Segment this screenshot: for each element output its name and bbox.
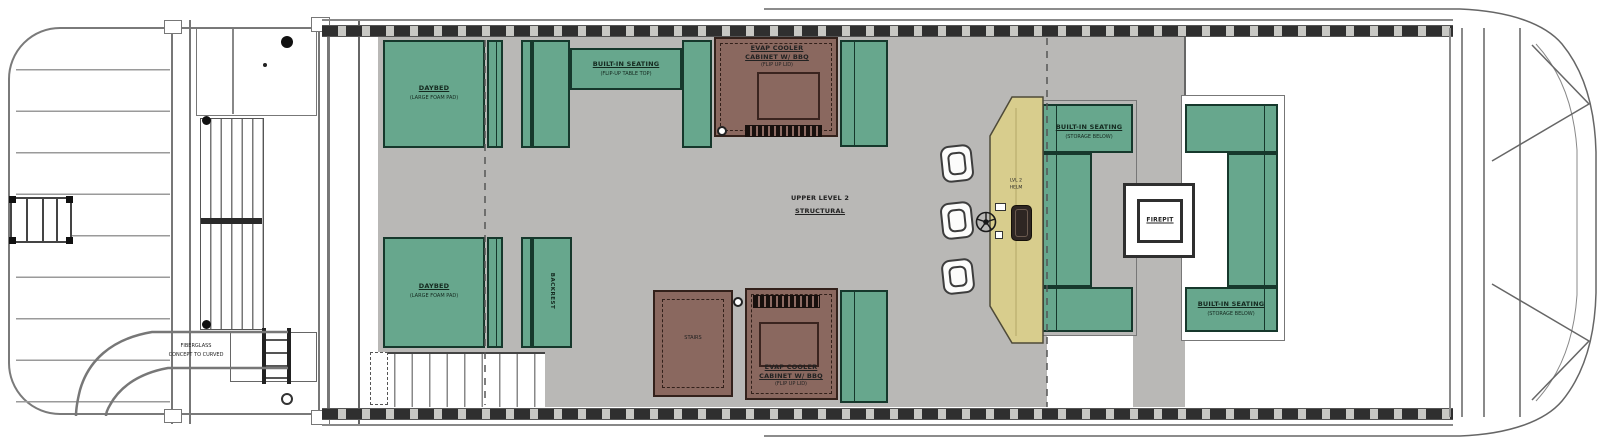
stairs-dashed-landing xyxy=(370,352,388,405)
deck-stairs xyxy=(378,352,545,407)
firepit-sofa-fwd-column xyxy=(1042,153,1092,287)
bar-stool xyxy=(939,143,975,183)
bulkhead-tab xyxy=(164,409,182,423)
cooler-fwd-line2: CABINET W/ BBQ xyxy=(745,53,809,61)
bow-aft-wall xyxy=(318,20,320,424)
daybed-fwd-sub: (LARGE FOAM PAD) xyxy=(410,95,458,101)
bow-panel xyxy=(196,28,317,116)
helm-gauge xyxy=(995,231,1003,239)
roof-edge-top xyxy=(322,19,1453,21)
cooler-side-seat xyxy=(840,290,888,403)
bulkhead-tab xyxy=(164,20,182,34)
deck-bolt xyxy=(281,36,293,48)
deck-aft-pocket xyxy=(1047,336,1133,407)
helm-gauge xyxy=(995,203,1006,211)
bow-bulkhead-line xyxy=(189,20,191,424)
bar-stool xyxy=(940,257,975,295)
cooler-side-seat xyxy=(840,40,888,147)
cooler-aft-line3: (FLIP UP LID) xyxy=(775,381,807,387)
stair-post xyxy=(202,320,211,329)
backrest-label: BACKREST xyxy=(549,273,555,309)
stern-bulkhead-line xyxy=(1519,28,1521,417)
gunwale-rail-top xyxy=(322,25,1453,37)
backrest-strip xyxy=(521,40,532,148)
sofa-arm xyxy=(532,40,570,148)
cooler-fwd-line1: EVAP COOLER xyxy=(751,44,804,52)
daybed-fwd-label: DAYBED xyxy=(419,84,450,92)
firepit-sofa-fwd-label: BUILT-IN SEATING xyxy=(1056,123,1123,131)
helm-label-line1: LVL 2 xyxy=(1010,179,1022,184)
deck-plan-canvas: UPPER LEVEL 2 STRUCTURAL DAYBED (LARGE F… xyxy=(0,0,1600,445)
center-label-line1: UPPER LEVEL 2 xyxy=(791,194,849,202)
stern-bulkhead-line xyxy=(1461,28,1463,417)
helm-label-line2: HELM xyxy=(1010,186,1023,191)
firepit-label: FIREPIT xyxy=(1146,217,1173,224)
sofa-arm xyxy=(682,40,712,148)
stair-post xyxy=(202,116,211,125)
helm-console xyxy=(1011,205,1032,241)
deck-edge-line xyxy=(1184,37,1186,97)
roof-edge-bottom xyxy=(322,424,1453,426)
bow-staircase xyxy=(200,118,264,330)
slide-ladder xyxy=(262,328,292,384)
cabinet-knob xyxy=(733,297,743,307)
gunwale-rail-bottom xyxy=(322,408,1453,420)
slide-label-line2: CONCEPT TO CURVED xyxy=(169,352,224,358)
cooler-fwd-line3: (FLIP UP LID) xyxy=(761,62,793,68)
cabinet-knob xyxy=(717,126,727,136)
stairwell-box xyxy=(653,290,733,397)
sofa-sub: (FLIP-UP TABLE TOP) xyxy=(600,71,651,77)
firepit-sofa-fwd-sub: (STORAGE BELOW) xyxy=(1065,134,1112,140)
sofa-label: BUILT-IN SEATING xyxy=(593,60,660,68)
sofa-divider xyxy=(1264,104,1265,332)
cooler-aft-line1: EVAP COOLER xyxy=(765,363,818,371)
bow-aft-wall xyxy=(327,20,329,424)
cabin-fwd-wall xyxy=(358,21,360,425)
bar-stool xyxy=(939,200,975,240)
backrest-strip xyxy=(487,40,503,148)
sofa-divider xyxy=(1056,104,1057,332)
firepit-sofa-aft-column xyxy=(1227,153,1278,287)
stairwell-label: STAIRS xyxy=(684,335,701,341)
firepit-sofa-aft-label: BUILT-IN SEATING xyxy=(1198,300,1265,308)
daybed-aft-label: DAYBED xyxy=(419,282,450,290)
backrest-strip xyxy=(487,237,503,348)
cooler-aft-line2: CABINET W/ BBQ xyxy=(759,372,823,380)
firepit-sofa-aft-sub: (STORAGE BELOW) xyxy=(1207,311,1254,317)
sofa-seat xyxy=(570,48,682,90)
deck-dot xyxy=(263,63,267,67)
bow-bulkhead-line xyxy=(171,20,173,424)
slide-label-line1: FIBERGLASS xyxy=(181,343,212,349)
stern-bulkhead-line xyxy=(1449,28,1451,417)
bow-ladder xyxy=(10,197,72,243)
evap-cooler-cabinet-fwd xyxy=(714,37,838,137)
deck-ring xyxy=(281,393,293,405)
center-label-line2: STRUCTURAL xyxy=(795,207,845,215)
daybed-fwd xyxy=(383,40,485,148)
backrest-strip xyxy=(521,237,532,348)
daybed-aft-sub: (LARGE FOAM PAD) xyxy=(410,293,458,299)
stern-bulkhead-line xyxy=(1483,28,1485,417)
